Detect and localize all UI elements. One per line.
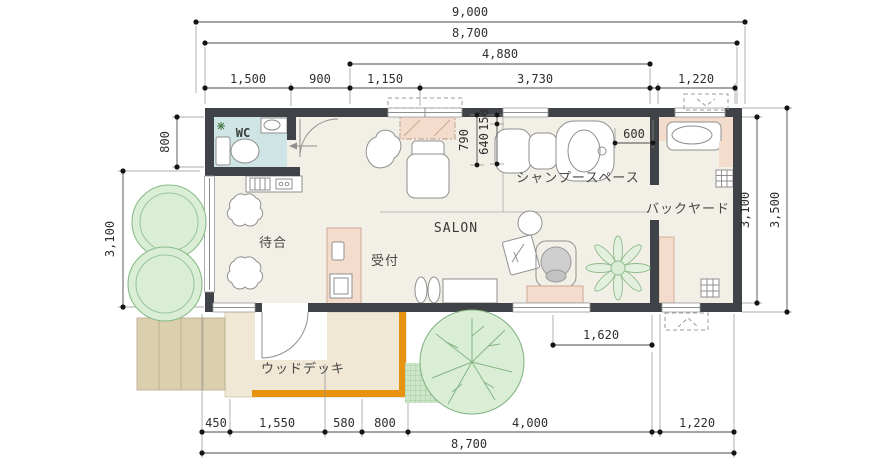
reception-item: [332, 242, 344, 260]
back-step: [665, 313, 708, 330]
bush-icon-2: [128, 247, 202, 321]
waiting-chair-1: [227, 194, 262, 226]
appliance-grid-icon: [701, 279, 719, 297]
customer-figure-arm: [546, 270, 566, 282]
backyard-cabinet-right: [719, 141, 733, 167]
dim-bot-800: 800: [374, 416, 396, 430]
dim-1620: 1,620: [583, 328, 619, 342]
dim-right-3100: 3,100: [738, 192, 752, 228]
dim-600: 600: [623, 127, 645, 141]
label-deck: ウッドデッキ: [261, 361, 345, 376]
dim-bot-1220: 1,220: [679, 416, 715, 430]
shampoo-chair-back-icon: [495, 129, 531, 173]
dim-seg-1500: 1,500: [230, 72, 266, 86]
label-reception: 受付: [371, 253, 399, 268]
label-backyard: バックヤード: [646, 201, 730, 216]
dim-seg-1220: 1,220: [678, 72, 714, 86]
floor-plan: 9,000 8,700 4,880 1,500 900 1,150 3,730 …: [0, 0, 890, 462]
entrance-porch: [684, 94, 728, 110]
dim-bot-total: 8,700: [451, 437, 487, 451]
flower-plant-icon: [586, 236, 650, 300]
deck-edge-bottom: [252, 390, 406, 397]
dim-bot-450: 450: [205, 416, 227, 430]
wood-deck-area: [137, 312, 406, 397]
label-waiting: 待合: [259, 235, 287, 250]
label-wc: WC: [236, 126, 250, 140]
wall-wc-east: [287, 108, 296, 140]
dim-bot-4000: 4,000: [512, 416, 548, 430]
shoe-cabinet: [400, 117, 455, 139]
deck-door-opening: [262, 303, 308, 312]
wc-vent-icon: [217, 122, 225, 130]
bench: [443, 279, 497, 303]
dim-seg-3730: 3,730: [517, 72, 553, 86]
styling-chair-1-seat: [407, 154, 449, 198]
vase-icon-1: [415, 277, 427, 303]
dim-top-building: 8,700: [452, 26, 488, 40]
deck-edge-right: [399, 312, 406, 397]
dim-top-total: 9,000: [452, 5, 488, 19]
styling-mirror-icon: [518, 211, 542, 235]
wall-top: [205, 108, 742, 117]
water-heater-icon: [716, 170, 733, 187]
dim-left-800: 800: [158, 131, 172, 153]
label-salon: SALON: [434, 221, 478, 236]
dim-top-inner: 4,880: [482, 47, 518, 61]
wall-wc-south: [205, 167, 300, 176]
back-step-mark: [678, 318, 698, 327]
deck-door-swing-area: [255, 312, 327, 360]
dim-right-3500: 3,500: [768, 192, 782, 228]
vase-icon-2: [428, 277, 440, 303]
porch-step-mark: [697, 99, 715, 106]
styling-counter-2: [527, 286, 583, 303]
waiting-chair-2: [227, 257, 262, 289]
dim-640: 640: [477, 133, 491, 155]
shampoo-chair-seat-icon: [529, 133, 557, 169]
backyard-cabinet-left: [659, 237, 674, 303]
wall-backyard-lower: [650, 220, 659, 312]
toilet-tank-icon: [216, 137, 230, 165]
wall-backyard-upper: [650, 108, 659, 185]
dim-seg-900: 900: [309, 72, 331, 86]
dim-150: 150: [477, 109, 491, 131]
dim-left-3100: 3,100: [103, 221, 117, 257]
dim-790: 790: [457, 129, 471, 151]
dim-bot-580: 580: [333, 416, 355, 430]
dim-seg-1150: 1,150: [367, 72, 403, 86]
label-shampoo: シャンプースペース: [516, 170, 639, 185]
entrance-canopy: [388, 98, 462, 108]
dim-bot-1550: 1,550: [259, 416, 295, 430]
floor-plan-drawing: 9,000 8,700 4,880 1,500 900 1,150 3,730 …: [0, 0, 890, 462]
toilet-bowl-icon: [231, 139, 259, 163]
